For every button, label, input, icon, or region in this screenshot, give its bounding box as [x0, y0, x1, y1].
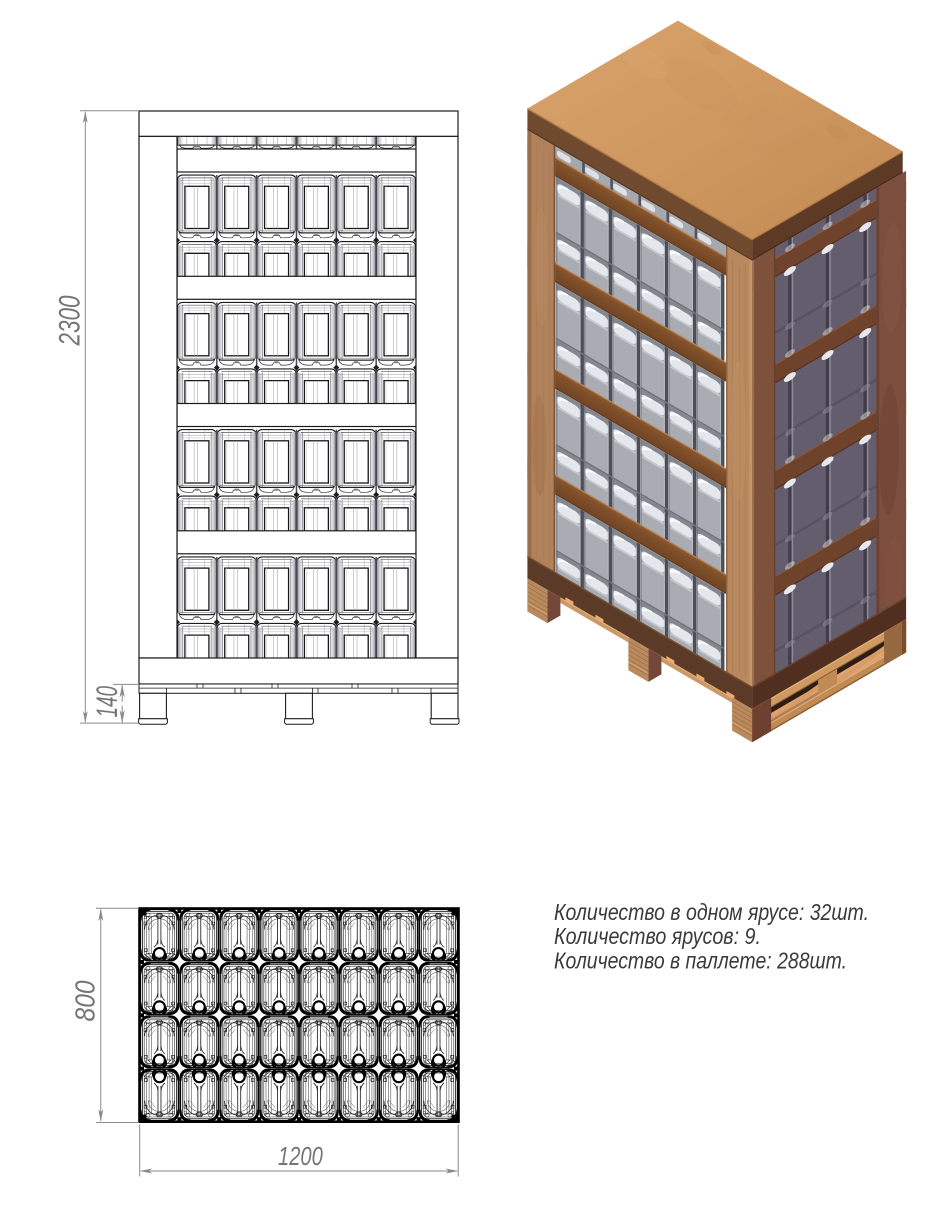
svg-text:Количество ярусов: 9.: Количество ярусов: 9. [554, 923, 761, 949]
svg-text:Количество в одном ярусе: 32шт: Количество в одном ярусе: 32шт. [554, 899, 869, 925]
svg-text:1200: 1200 [278, 1142, 323, 1171]
svg-text:2300: 2300 [52, 295, 86, 346]
svg-text:800: 800 [69, 980, 101, 1021]
svg-text:Количество в паллете: 288шт.: Количество в паллете: 288шт. [554, 948, 847, 974]
svg-text:140: 140 [90, 686, 124, 718]
